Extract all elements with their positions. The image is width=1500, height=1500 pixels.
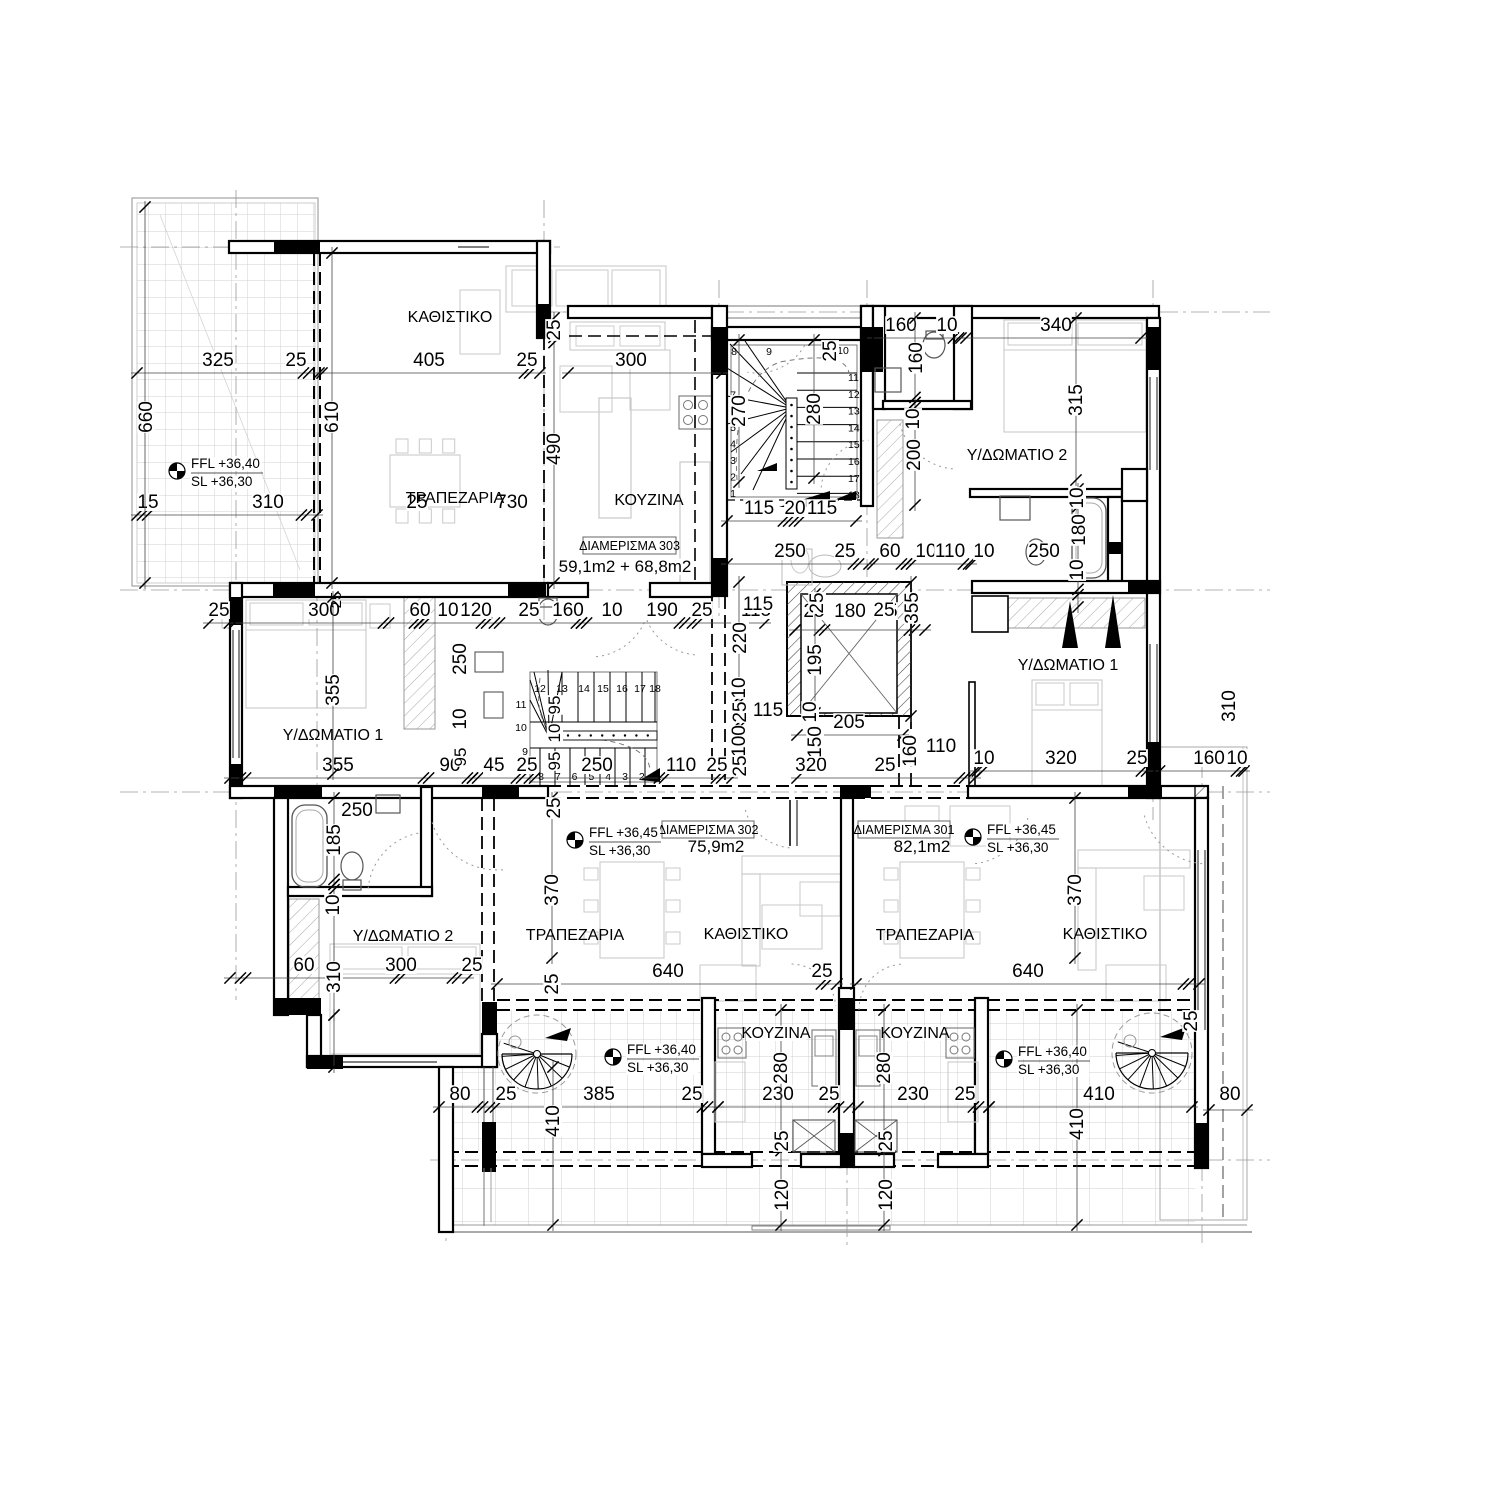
svg-text:11: 11: [516, 699, 527, 711]
svg-text:18: 18: [649, 683, 661, 695]
svg-text:120: 120: [460, 600, 492, 621]
svg-text:6: 6: [572, 771, 578, 783]
svg-text:15: 15: [848, 439, 860, 451]
svg-text:FFL +36,45: FFL +36,45: [589, 825, 658, 840]
svg-text:ΤΡΑΠΕΖΑΡΙΑ: ΤΡΑΠΕΖΑΡΙΑ: [406, 490, 505, 507]
svg-text:280: 280: [771, 1052, 792, 1084]
svg-text:250: 250: [341, 800, 373, 821]
svg-text:160: 160: [900, 735, 921, 767]
svg-text:25: 25: [811, 961, 832, 982]
svg-text:10: 10: [800, 701, 821, 722]
svg-text:ΚΟΥΖΙΝΑ: ΚΟΥΖΙΝΑ: [880, 1025, 950, 1042]
svg-text:3: 3: [730, 455, 736, 467]
svg-text:10: 10: [1067, 487, 1088, 508]
svg-text:230: 230: [897, 1084, 929, 1105]
svg-text:12: 12: [848, 389, 860, 401]
svg-text:10: 10: [545, 724, 564, 743]
svg-text:14: 14: [578, 683, 590, 695]
svg-text:25: 25: [544, 319, 565, 340]
svg-text:FFL +36,45: FFL +36,45: [987, 822, 1056, 837]
svg-text:115: 115: [743, 594, 773, 615]
svg-text:20: 20: [784, 498, 805, 519]
svg-text:FFL +36,40: FFL +36,40: [1018, 1044, 1087, 1059]
svg-text:10: 10: [903, 408, 924, 429]
svg-text:10: 10: [450, 708, 471, 729]
svg-text:25: 25: [328, 592, 345, 609]
svg-text:310: 310: [324, 961, 345, 993]
svg-text:115: 115: [753, 700, 783, 721]
svg-text:160: 160: [906, 342, 927, 374]
svg-text:95: 95: [545, 696, 564, 715]
svg-text:160: 160: [885, 315, 917, 336]
svg-text:410: 410: [1067, 1108, 1088, 1140]
svg-text:ΔΙΑΜΕΡΙΣΜΑ 301: ΔΙΑΜΕΡΙΣΜΑ 301: [854, 823, 955, 837]
svg-text:16: 16: [848, 456, 860, 468]
svg-text:220: 220: [730, 622, 751, 654]
svg-text:25: 25: [730, 755, 751, 776]
svg-text:115: 115: [807, 498, 837, 519]
svg-text:300: 300: [615, 350, 647, 371]
svg-text:60: 60: [409, 600, 430, 621]
svg-text:ΚΟΥΖΙΝΑ: ΚΟΥΖΙΝΑ: [614, 492, 684, 509]
svg-text:315: 315: [1066, 384, 1087, 416]
svg-text:320: 320: [1045, 748, 1077, 769]
svg-text:355: 355: [323, 674, 344, 706]
svg-text:185: 185: [324, 824, 345, 856]
svg-text:660: 660: [136, 401, 157, 433]
svg-text:120: 120: [772, 1179, 793, 1211]
svg-text:16: 16: [616, 683, 628, 695]
svg-text:385: 385: [583, 1084, 615, 1105]
svg-text:250: 250: [581, 755, 613, 776]
svg-text:25: 25: [544, 797, 565, 818]
svg-text:340: 340: [1040, 315, 1072, 336]
svg-text:25: 25: [772, 1130, 793, 1151]
svg-text:25: 25: [1181, 1010, 1202, 1031]
svg-text:180: 180: [1069, 514, 1090, 546]
svg-text:10: 10: [973, 748, 994, 769]
svg-text:250: 250: [450, 643, 471, 675]
svg-text:25: 25: [730, 701, 751, 722]
svg-text:10: 10: [1067, 559, 1088, 580]
svg-text:ΚΟΥΖΙΝΑ: ΚΟΥΖΙΝΑ: [741, 1025, 811, 1042]
svg-text:Υ/ΔΩΜΑΤΙΟ 1: Υ/ΔΩΜΑΤΙΟ 1: [283, 727, 384, 744]
svg-text:410: 410: [1083, 1084, 1115, 1105]
svg-text:10: 10: [601, 600, 622, 621]
svg-text:SL +36,30: SL +36,30: [987, 840, 1048, 855]
svg-text:370: 370: [542, 874, 563, 906]
svg-text:82,1m2: 82,1m2: [894, 837, 951, 856]
svg-text:SL +36,30: SL +36,30: [1018, 1062, 1079, 1077]
svg-text:13: 13: [848, 406, 860, 418]
svg-text:80: 80: [1219, 1084, 1240, 1105]
svg-text:95: 95: [451, 748, 470, 767]
svg-text:ΚΑΘΙΣΤΙΚΟ: ΚΑΘΙΣΤΙΚΟ: [408, 309, 493, 326]
svg-text:15: 15: [597, 683, 609, 695]
svg-text:25: 25: [818, 1084, 839, 1105]
svg-text:2: 2: [639, 771, 645, 783]
svg-text:300: 300: [385, 955, 417, 976]
svg-text:7: 7: [555, 771, 561, 783]
svg-text:45: 45: [483, 755, 504, 776]
svg-text:405: 405: [413, 350, 445, 371]
svg-text:ΔΙΑΜΕΡΙΣΜΑ 303: ΔΙΑΜΕΡΙΣΜΑ 303: [579, 539, 680, 553]
svg-text:10: 10: [1226, 748, 1247, 769]
svg-text:410: 410: [543, 1105, 564, 1137]
svg-text:100: 100: [729, 725, 750, 757]
svg-text:25: 25: [820, 340, 841, 361]
svg-text:Υ/ΔΩΜΑΤΙΟ 2: Υ/ΔΩΜΑΤΙΟ 2: [353, 928, 454, 945]
svg-text:10: 10: [729, 677, 750, 698]
svg-text:110: 110: [666, 755, 696, 776]
svg-text:25: 25: [691, 600, 712, 621]
svg-text:FFL +36,40: FFL +36,40: [191, 456, 260, 471]
svg-text:355: 355: [902, 592, 923, 624]
svg-text:60: 60: [293, 955, 314, 976]
svg-text:SL +36,30: SL +36,30: [627, 1060, 688, 1075]
svg-text:ΤΡΑΠΕΖΑΡΙΑ: ΤΡΑΠΕΖΑΡΙΑ: [876, 927, 975, 944]
svg-text:120: 120: [876, 1179, 897, 1211]
svg-text:25: 25: [518, 600, 539, 621]
svg-text:325: 325: [202, 350, 234, 371]
svg-text:110: 110: [935, 541, 965, 562]
svg-text:25: 25: [681, 1084, 702, 1105]
svg-text:1: 1: [730, 488, 736, 500]
svg-text:SL +36,30: SL +36,30: [191, 474, 252, 489]
svg-text:10: 10: [437, 600, 458, 621]
svg-text:ΔΙΑΜΕΡΙΣΜΑ 302: ΔΙΑΜΕΡΙΣΜΑ 302: [658, 823, 759, 837]
svg-text:280: 280: [874, 1052, 895, 1084]
svg-text:8: 8: [731, 346, 737, 358]
svg-text:310: 310: [1219, 690, 1240, 722]
svg-text:ΚΑΘΙΣΤΙΚΟ: ΚΑΘΙΣΤΙΚΟ: [704, 926, 789, 943]
svg-text:230: 230: [762, 1084, 794, 1105]
svg-text:17: 17: [848, 473, 860, 485]
svg-text:9: 9: [766, 346, 772, 358]
svg-text:25: 25: [516, 350, 537, 371]
svg-text:10: 10: [515, 722, 527, 734]
svg-text:Υ/ΔΩΜΑΤΙΟ 2: Υ/ΔΩΜΑΤΙΟ 2: [967, 447, 1068, 464]
svg-text:160: 160: [1193, 748, 1225, 769]
svg-text:25: 25: [954, 1084, 975, 1105]
svg-text:310: 310: [252, 492, 284, 513]
svg-text:11: 11: [848, 372, 859, 384]
svg-text:25: 25: [706, 755, 727, 776]
svg-text:270: 270: [729, 395, 750, 427]
svg-text:195: 195: [805, 644, 826, 676]
svg-text:25: 25: [1126, 748, 1147, 769]
svg-text:SL +36,30: SL +36,30: [589, 843, 650, 858]
svg-text:115: 115: [744, 498, 774, 519]
svg-text:14: 14: [848, 422, 860, 434]
svg-text:280: 280: [804, 393, 825, 425]
svg-text:250: 250: [774, 541, 806, 562]
svg-text:17: 17: [634, 683, 646, 695]
svg-text:25: 25: [495, 1084, 516, 1105]
svg-text:25: 25: [516, 755, 537, 776]
svg-text:25: 25: [542, 973, 563, 994]
svg-text:190: 190: [646, 600, 678, 621]
svg-text:15: 15: [137, 492, 158, 513]
svg-text:180: 180: [834, 601, 866, 622]
svg-text:10: 10: [323, 894, 344, 915]
svg-text:59,1m2 + 68,8m2: 59,1m2 + 68,8m2: [559, 557, 692, 576]
svg-text:150: 150: [805, 726, 826, 758]
svg-text:95: 95: [545, 752, 564, 771]
svg-text:12: 12: [534, 683, 546, 695]
svg-text:370: 370: [1065, 874, 1086, 906]
svg-text:13: 13: [556, 683, 568, 695]
svg-text:25: 25: [873, 600, 894, 621]
svg-text:25: 25: [834, 541, 855, 562]
svg-text:205: 205: [833, 712, 865, 733]
svg-text:4: 4: [730, 439, 736, 451]
svg-text:110: 110: [926, 736, 956, 757]
svg-text:200: 200: [904, 439, 925, 471]
svg-text:3: 3: [622, 771, 628, 783]
svg-text:10: 10: [915, 541, 936, 562]
svg-text:60: 60: [879, 541, 900, 562]
svg-text:Υ/ΔΩΜΑΤΙΟ 1: Υ/ΔΩΜΑΤΙΟ 1: [1018, 657, 1119, 674]
svg-text:10: 10: [936, 315, 957, 336]
svg-text:25: 25: [208, 600, 229, 621]
svg-text:640: 640: [1012, 961, 1044, 982]
svg-text:2: 2: [730, 471, 736, 483]
svg-text:160: 160: [552, 600, 584, 621]
svg-text:FFL +36,40: FFL +36,40: [627, 1042, 696, 1057]
svg-text:250: 250: [1028, 541, 1060, 562]
svg-text:75,9m2: 75,9m2: [688, 837, 745, 856]
svg-text:18: 18: [848, 490, 860, 502]
svg-text:640: 640: [652, 961, 684, 982]
svg-text:25: 25: [461, 955, 482, 976]
svg-text:10: 10: [973, 541, 994, 562]
svg-text:610: 610: [322, 401, 343, 433]
svg-text:ΚΑΘΙΣΤΙΚΟ: ΚΑΘΙΣΤΙΚΟ: [1063, 926, 1148, 943]
svg-text:25: 25: [874, 755, 895, 776]
svg-text:ΤΡΑΠΕΖΑΡΙΑ: ΤΡΑΠΕΖΑΡΙΑ: [526, 927, 625, 944]
svg-text:25: 25: [807, 592, 828, 613]
svg-text:355: 355: [322, 755, 354, 776]
svg-text:25: 25: [876, 1130, 897, 1151]
svg-text:25: 25: [285, 350, 306, 371]
svg-text:490: 490: [544, 433, 565, 465]
svg-text:80: 80: [449, 1084, 470, 1105]
